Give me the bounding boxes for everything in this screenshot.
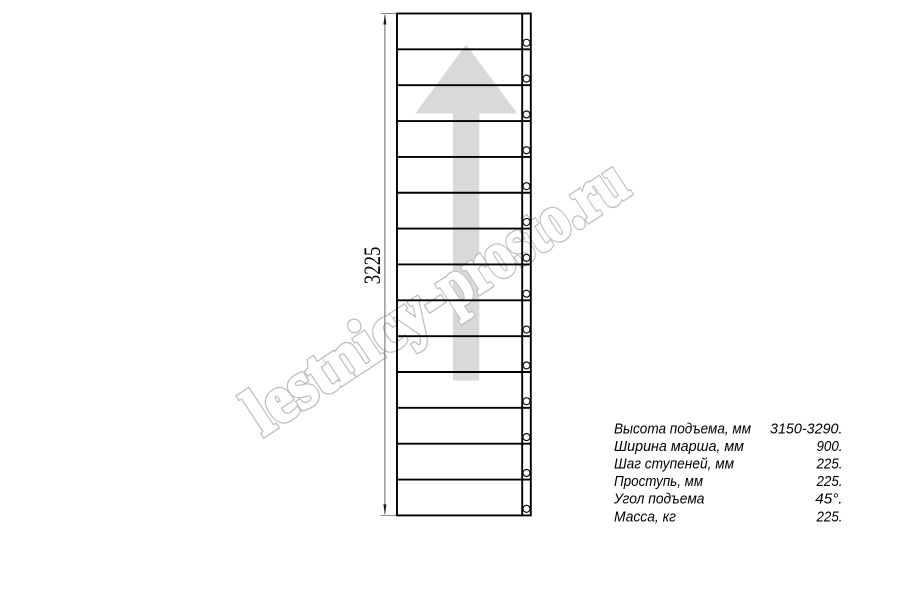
svg-text:Масса, кг: Масса, кг xyxy=(614,508,677,525)
svg-text:45°.: 45°. xyxy=(815,491,842,508)
svg-text:Высота подъема, мм: Высота подъема, мм xyxy=(614,420,751,437)
svg-text:Ширина марша, мм: Ширина марша, мм xyxy=(614,438,744,455)
svg-text:3150-3290.: 3150-3290. xyxy=(770,420,843,437)
svg-text:Проступь, мм: Проступь, мм xyxy=(614,473,703,490)
svg-text:Угол подъема: Угол подъема xyxy=(613,491,704,508)
svg-text:225.: 225. xyxy=(816,473,843,490)
svg-text:900.: 900. xyxy=(817,438,843,455)
svg-text:Шаг ступеней, мм: Шаг ступеней, мм xyxy=(614,456,734,473)
svg-text:3225: 3225 xyxy=(360,247,385,285)
svg-text:225.: 225. xyxy=(816,456,843,473)
svg-text:225.: 225. xyxy=(816,508,843,525)
